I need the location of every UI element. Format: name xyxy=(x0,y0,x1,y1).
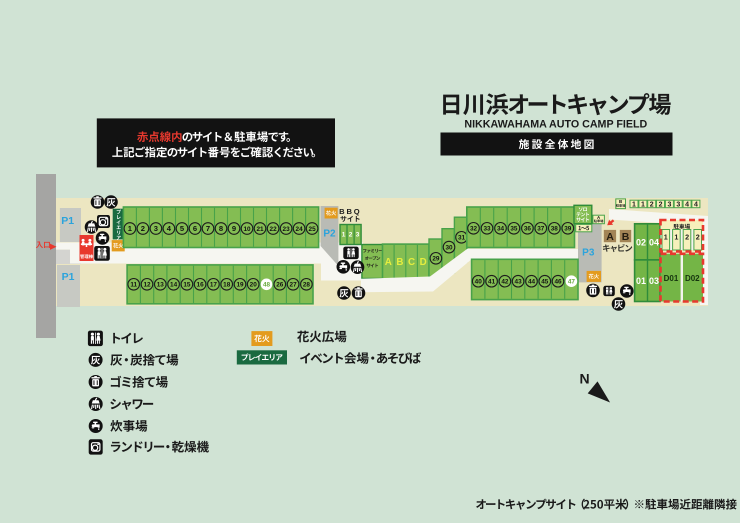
svg-text:3: 3 xyxy=(667,202,671,209)
svg-text:P1: P1 xyxy=(61,215,74,227)
svg-text:1: 1 xyxy=(641,202,645,209)
svg-text:3: 3 xyxy=(154,224,158,233)
svg-text:22: 22 xyxy=(270,226,278,233)
svg-text:D: D xyxy=(420,257,427,268)
svg-text:40: 40 xyxy=(475,279,483,286)
svg-text:34: 34 xyxy=(497,226,505,233)
svg-text:23: 23 xyxy=(283,226,291,233)
svg-text:2: 2 xyxy=(650,202,654,209)
svg-text:B: B xyxy=(619,199,622,204)
svg-text:37: 37 xyxy=(537,226,545,233)
svg-text:D02: D02 xyxy=(685,274,700,283)
svg-text:A: A xyxy=(606,231,614,243)
svg-text:38: 38 xyxy=(551,226,559,233)
svg-text:1: 1 xyxy=(664,232,668,241)
svg-text:19: 19 xyxy=(236,282,244,289)
svg-text:11: 11 xyxy=(130,282,137,289)
svg-text:9: 9 xyxy=(232,224,236,233)
svg-text:46: 46 xyxy=(554,279,562,286)
svg-text:C: C xyxy=(408,257,415,268)
svg-text:7: 7 xyxy=(206,224,210,233)
svg-text:14: 14 xyxy=(170,282,178,289)
svg-text:4: 4 xyxy=(685,202,689,209)
svg-text:2: 2 xyxy=(141,224,145,233)
svg-text:P2: P2 xyxy=(323,228,336,239)
svg-text:21: 21 xyxy=(256,226,264,233)
svg-text:32: 32 xyxy=(470,226,478,233)
svg-text:29: 29 xyxy=(432,256,440,263)
svg-text:44: 44 xyxy=(528,279,536,286)
svg-text:P3: P3 xyxy=(582,248,595,259)
svg-text:47: 47 xyxy=(568,279,576,286)
svg-text:33: 33 xyxy=(483,226,491,233)
svg-text:A: A xyxy=(385,257,392,268)
svg-text:02: 02 xyxy=(636,237,646,247)
svg-text:1: 1 xyxy=(632,202,636,209)
svg-text:16: 16 xyxy=(197,282,205,289)
svg-text:NIKKAWAHAMA AUTO CAMP FIELD: NIKKAWAHAMA AUTO CAMP FIELD xyxy=(464,118,647,130)
svg-text:27: 27 xyxy=(290,282,298,289)
svg-text:03: 03 xyxy=(649,276,659,286)
svg-text:2: 2 xyxy=(659,202,663,209)
svg-text:39: 39 xyxy=(564,226,572,233)
svg-text:6: 6 xyxy=(193,224,197,233)
svg-text:18: 18 xyxy=(223,282,231,289)
svg-text:P1: P1 xyxy=(62,271,75,283)
svg-text:20: 20 xyxy=(250,282,258,289)
svg-text:35: 35 xyxy=(510,226,518,233)
svg-text:48: 48 xyxy=(263,282,271,289)
svg-text:28: 28 xyxy=(303,282,311,289)
svg-text:3: 3 xyxy=(356,232,360,239)
svg-text:24: 24 xyxy=(296,226,304,233)
svg-text:04: 04 xyxy=(649,237,659,247)
svg-text:17: 17 xyxy=(210,282,218,289)
svg-text:D01: D01 xyxy=(664,274,679,283)
svg-text:13: 13 xyxy=(157,282,165,289)
svg-text:26: 26 xyxy=(276,282,284,289)
svg-text:1: 1 xyxy=(674,232,678,241)
svg-text:2: 2 xyxy=(685,232,689,241)
svg-text:10: 10 xyxy=(243,226,251,233)
svg-text:42: 42 xyxy=(501,279,509,286)
svg-text:3: 3 xyxy=(676,202,680,209)
svg-text:2: 2 xyxy=(349,232,353,239)
svg-text:2: 2 xyxy=(696,232,700,241)
svg-text:36: 36 xyxy=(524,226,532,233)
svg-text:1: 1 xyxy=(342,232,346,239)
svg-text:45: 45 xyxy=(541,279,549,286)
svg-text:30: 30 xyxy=(445,244,453,251)
svg-text:B: B xyxy=(396,257,403,268)
svg-text:01: 01 xyxy=(636,276,646,286)
svg-text:B: B xyxy=(622,231,630,243)
svg-text:43: 43 xyxy=(515,279,523,286)
svg-text:8: 8 xyxy=(219,224,223,233)
svg-text:N: N xyxy=(579,371,589,387)
svg-text:25: 25 xyxy=(309,226,317,233)
svg-text:4: 4 xyxy=(694,202,698,209)
svg-text:BBQ: BBQ xyxy=(339,207,361,216)
svg-text:15: 15 xyxy=(183,282,191,289)
svg-text:41: 41 xyxy=(488,279,496,286)
svg-text:31: 31 xyxy=(458,235,466,242)
svg-text:12: 12 xyxy=(143,282,151,289)
